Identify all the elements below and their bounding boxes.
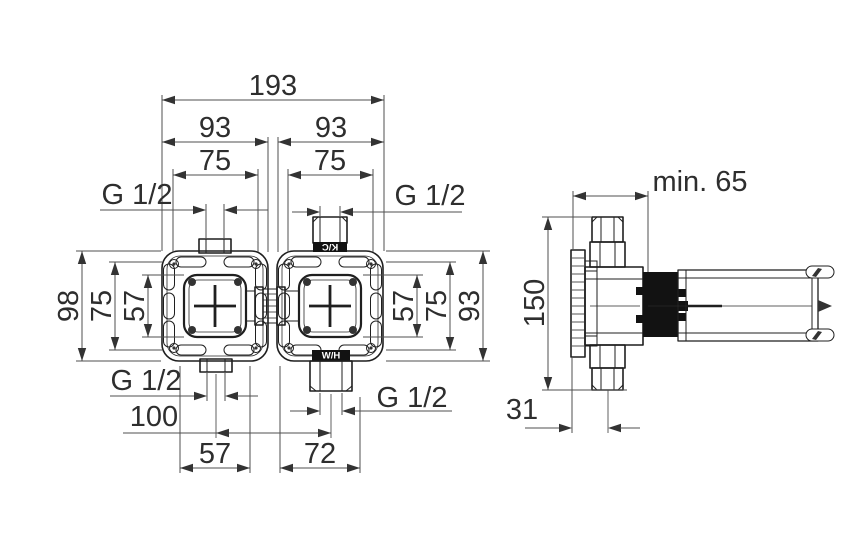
left-body-cross-mark — [194, 285, 236, 327]
side-view: min. 65 150 31 — [506, 166, 834, 433]
seal-band — [636, 272, 688, 337]
dim-height-body: 57 — [119, 290, 151, 322]
valve-installation-drawing: K/C W/H — [0, 0, 845, 541]
dim-port-spacing: 100 — [130, 401, 178, 433]
thread-top-right: G 1/2 — [395, 180, 466, 212]
thread-bottom-left: G 1/2 — [111, 365, 182, 397]
dim-height-flange: 75 — [86, 290, 118, 322]
dim-left-port-span: 75 — [199, 145, 231, 177]
thread-top-left: G 1/2 — [102, 179, 173, 211]
side-dimension-labels: min. 65 150 31 — [506, 166, 748, 426]
right-top-pipe: K/C — [313, 217, 347, 252]
dim-left-width: 93 — [199, 112, 231, 144]
dim-right-height-body: 57 — [388, 290, 420, 322]
dim-right-height-overall: 93 — [454, 290, 486, 322]
right-valve-body: K/C W/H — [277, 217, 383, 391]
side-extension-lines — [542, 191, 648, 433]
dim-overall-width: 193 — [249, 70, 297, 102]
center-connector — [246, 287, 299, 325]
left-valve-body — [162, 239, 268, 372]
bottom-hex-pipes — [590, 345, 625, 390]
right-bottom-pipe: W/H — [310, 350, 352, 391]
dim-right-height-flange: 75 — [421, 290, 453, 322]
hot-port-label: W/H — [322, 351, 341, 362]
right-body-cross-mark — [309, 285, 351, 327]
dim-flange-offset: 31 — [506, 394, 538, 426]
dim-side-height: 150 — [519, 279, 551, 327]
dim-min-depth: min. 65 — [652, 166, 747, 198]
dim-right-width: 93 — [315, 112, 347, 144]
thread-bottom-right: G 1/2 — [377, 382, 448, 414]
top-hex-pipes — [590, 217, 625, 267]
front-dimension-labels: 193 93 93 75 75 G 1/2 G 1/2 98 75 57 57 … — [53, 70, 486, 470]
front-view: K/C W/H — [53, 70, 490, 473]
flange-plate — [571, 250, 597, 357]
dim-bottom-right-span: 72 — [304, 438, 336, 470]
technical-drawing-page: K/C W/H — [0, 0, 845, 541]
cold-port-label: K/C — [322, 241, 339, 252]
dim-height-overall: 98 — [53, 290, 85, 322]
valve-body-side — [585, 267, 643, 345]
cap-snap-hooks — [806, 266, 834, 341]
dim-bottom-left-span: 57 — [199, 438, 231, 470]
dim-right-port-span: 75 — [314, 145, 346, 177]
